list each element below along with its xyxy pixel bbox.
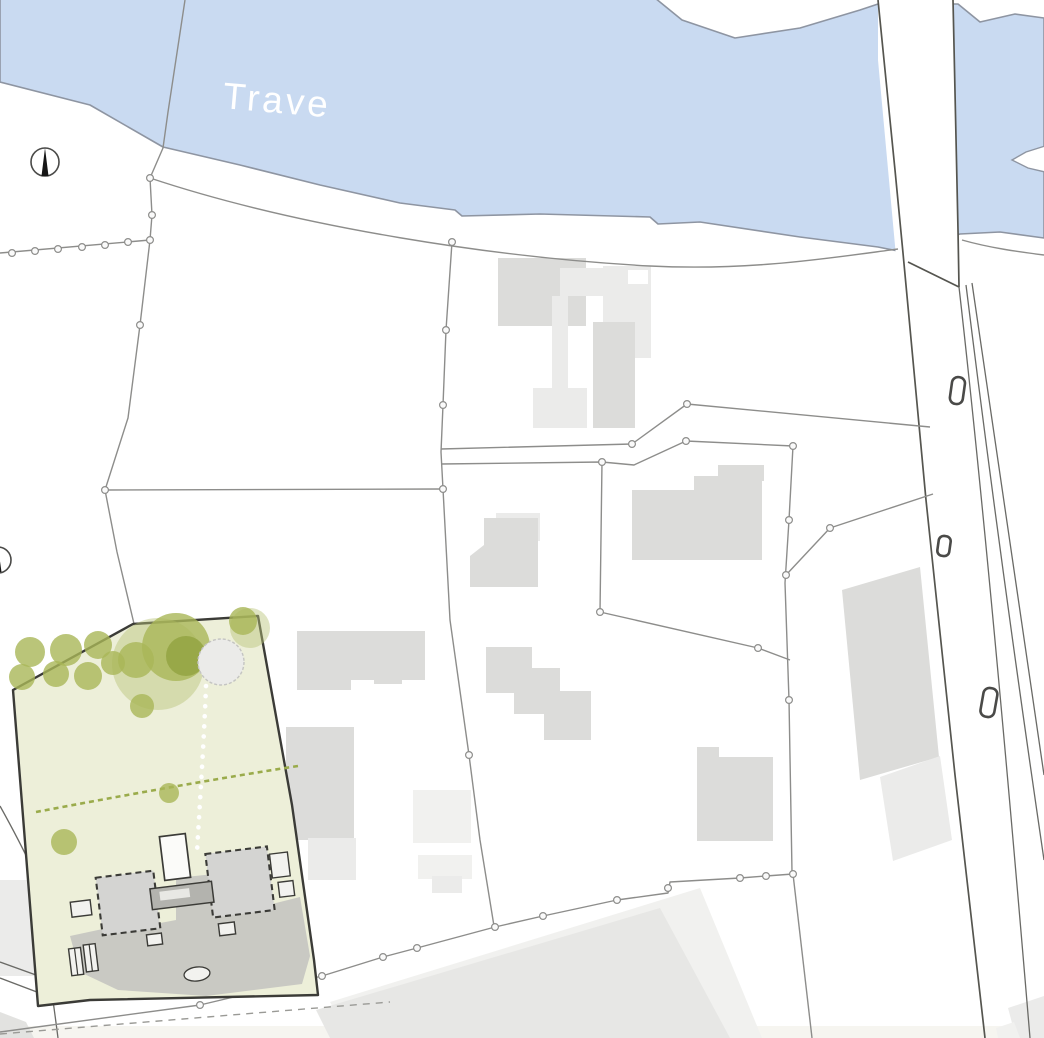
parcel-node [440,486,447,493]
building-footprint [697,747,719,759]
parcel-node [629,441,636,448]
parcel-node [79,244,86,251]
parcel-node [9,250,16,257]
new-building-east [205,846,274,917]
tree-symbol [9,664,35,690]
parcel-node [684,401,691,408]
building-footprint [470,518,538,587]
building-footprint [697,757,773,841]
parcel-node [786,517,793,524]
building-footprint [842,567,939,780]
parcel-node [147,175,154,182]
site-plan-map: Trave [0,0,1044,1038]
street-lamp-symbol [937,535,952,556]
building-footprint [632,490,696,560]
parcel-node [102,487,109,494]
building-footprint [718,465,764,481]
riverbank-path [962,240,1044,255]
building-footprint [297,631,425,680]
building-courtyard [628,270,648,284]
parcel-node [137,322,144,329]
outbuilding [218,922,235,936]
site-plan-canvas: Trave [0,0,1044,1038]
building-footprint [544,691,591,740]
annex-building [278,881,295,898]
parcel-boundary [105,489,443,490]
building-footprint [413,790,471,843]
tree-symbol [118,642,154,678]
parcel-node [737,875,744,882]
building-footprint [432,876,462,893]
parcel-node [55,246,62,253]
building-footprint [297,676,351,690]
street-lamp-symbol [980,687,999,718]
parcel-node [440,402,447,409]
north-arrow [0,547,11,573]
tree-symbol [229,607,257,635]
parcel-node [790,871,797,878]
parcel-node [147,237,154,244]
road-edge [966,285,1044,860]
road-bridge-surface [878,0,962,300]
existing-tree-symbol [198,639,244,685]
parcel-node [414,945,421,952]
parcel-node [449,239,456,246]
parcel-node [683,438,690,445]
parcel-node [614,897,621,904]
garage-building [159,834,190,881]
building-footprint [593,322,635,428]
building-footprint [880,756,952,861]
parcel-boundary [786,494,933,575]
building-footprint [533,388,587,428]
annex-building [269,852,290,878]
tree-symbol [15,637,45,667]
parcel-node [149,212,156,219]
parcel-node [790,443,797,450]
parcel-node [319,973,326,980]
parking-area [316,908,730,1038]
outbuilding [70,900,92,917]
parcel-boundary [793,874,812,1038]
street-lamp-symbol [949,376,966,405]
tree-symbol [74,662,102,690]
building-footprint [308,838,356,880]
parcel-node [540,913,547,920]
symbols-layer [0,148,59,573]
new-building-west [96,871,161,936]
parcel-node [783,572,790,579]
parcel-node [597,609,604,616]
building-corridor [552,296,568,394]
outbuilding [146,933,162,946]
tree-symbol [159,783,179,803]
development-site-layer [9,607,318,1006]
parcel-node [827,525,834,532]
building-footprint [694,476,762,560]
parcel-node [466,752,473,759]
parcel-node [443,327,450,334]
parcel-node [599,459,606,466]
parcel-node [755,645,762,652]
tree-symbol [51,829,77,855]
parcel-node [32,248,39,255]
tree-symbol [43,661,69,687]
parcel-node [665,885,672,892]
parcel-node [763,873,770,880]
parcel-node [492,924,499,931]
parcel-node [380,954,387,961]
building-footprint [418,855,472,879]
road-edge [959,287,1030,1038]
tree-symbol [130,694,154,718]
building-footprint [374,672,402,684]
parcel-node [102,242,109,249]
parcel-node [786,697,793,704]
parcel-node [125,239,132,246]
building-footprint [286,727,354,840]
parcel-node [197,1002,204,1009]
